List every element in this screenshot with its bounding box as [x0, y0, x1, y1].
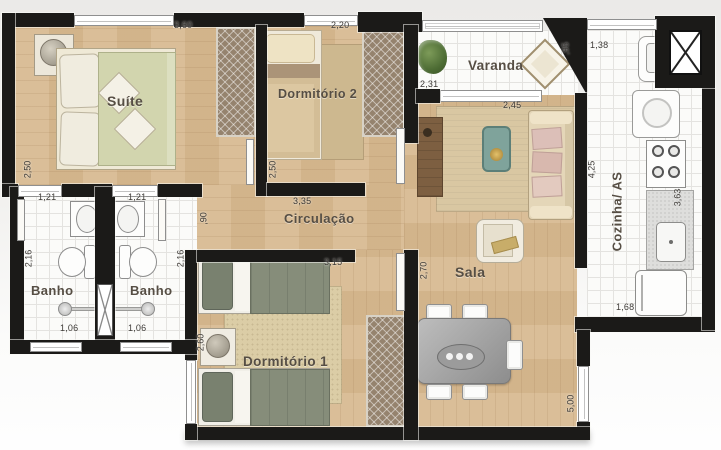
washer-drum — [642, 98, 672, 128]
wall — [267, 183, 365, 196]
stove-burner — [668, 166, 680, 178]
door-dormitorio1 — [396, 253, 405, 311]
room-label-sala: Sala — [455, 264, 485, 280]
dim-dorm1-depth: 2,60 — [197, 328, 206, 358]
window-cozinha — [587, 19, 657, 30]
dim-dorm2-width: 2,20 — [331, 21, 349, 30]
wall — [404, 25, 418, 143]
dining-chair — [426, 384, 452, 400]
wall — [185, 427, 590, 440]
wall — [575, 317, 715, 332]
dim-banho-right-door: 1,21 — [128, 193, 146, 202]
sofa-pillow — [531, 127, 562, 150]
dim-banho-left-window: 1,06 — [60, 324, 78, 333]
dim-suite-width: 3,60 — [174, 21, 192, 30]
bed-pillow — [266, 34, 315, 63]
dim-kitchen-width: 1,68 — [616, 303, 634, 312]
door-dormitorio2 — [396, 128, 405, 184]
room-label-dormitorio2: Dormitório 2 — [278, 87, 357, 101]
wall — [575, 93, 587, 268]
wardrobe-suite — [216, 27, 256, 137]
shaft-x-icon — [669, 30, 702, 75]
wall — [577, 330, 590, 366]
window-sala — [578, 366, 589, 422]
toilet-bowl — [58, 247, 86, 277]
dim-sala-width: 2,45 — [503, 101, 521, 110]
dim-dorm1-width: 3,15 — [324, 258, 342, 267]
room-label-suite: Suíte — [107, 93, 143, 109]
platter-dot — [446, 353, 453, 360]
dim-corridor-width: 3,35 — [293, 197, 311, 206]
shower-head-icon — [141, 302, 155, 316]
stove-burner — [652, 145, 664, 157]
room-label-circulacao: Circulação — [284, 211, 354, 226]
stove-burner — [652, 166, 664, 178]
dining-chair — [506, 340, 523, 370]
dining-chair — [462, 384, 488, 400]
platter-dot — [456, 353, 463, 360]
stove-burner — [668, 145, 680, 157]
toilet-bowl — [129, 247, 157, 277]
varanda-sala-door — [440, 90, 542, 102]
sofa-armrest — [530, 112, 572, 124]
dim-banho-right-window: 1,06 — [128, 324, 146, 333]
wall — [185, 424, 197, 440]
bed-sheet — [235, 259, 250, 311]
sofa-pillow — [531, 151, 562, 174]
varanda-railing — [422, 20, 543, 32]
room-label-banho-left: Banho — [31, 283, 73, 298]
bed-duvet — [250, 369, 330, 426]
room-label-varanda: Varanda — [468, 58, 523, 73]
dim-varanda-width: 2,31 — [420, 80, 438, 89]
window-suite — [74, 15, 174, 26]
floorplan: Suíte Dormitório 2 Varanda Cozinha/ AS C… — [0, 0, 721, 450]
window-dormitorio1 — [186, 360, 196, 424]
dim-dorm2-depth: 2,50 — [269, 155, 278, 185]
platter-dot — [466, 353, 473, 360]
door-banho-right — [158, 199, 166, 241]
wall — [2, 13, 15, 196]
dim-sala-depth: 2,70 — [420, 256, 429, 286]
bed-pillow — [59, 53, 101, 108]
dim-banho-left-depth: 2,16 — [25, 244, 34, 274]
bed-sheet — [235, 371, 250, 423]
faucet-dot — [669, 240, 673, 244]
window-banho-right — [120, 342, 172, 352]
bed-duvet — [262, 64, 320, 78]
rug-dormitorio2 — [320, 44, 364, 160]
dim-suite-depth: 2,50 — [24, 155, 33, 185]
wall — [256, 25, 267, 196]
dim-kitchen-window: 1,38 — [590, 41, 608, 50]
wardrobe-dormitorio1 — [366, 315, 407, 427]
room-label-dormitorio1: Dormitório 1 — [243, 354, 328, 369]
room-label-cozinha: Cozinha/ AS — [610, 142, 625, 282]
sink-basin — [117, 205, 139, 233]
dim-banho-left-door: 1,21 — [38, 193, 56, 202]
shower-head-icon — [58, 302, 72, 316]
bed-pillow — [202, 372, 233, 422]
wall — [174, 13, 304, 27]
door-banho-left — [17, 199, 25, 241]
room-label-banho-right: Banho — [130, 283, 172, 298]
wall — [416, 89, 440, 103]
table-lamp-icon — [206, 334, 230, 358]
wall — [158, 184, 202, 197]
dim-sala-length: 5,00 — [567, 389, 576, 419]
sofa-backrest — [565, 113, 573, 217]
cabinet-decor — [423, 128, 432, 137]
shaft-x-icon — [97, 284, 113, 336]
fridge-handle — [641, 275, 643, 311]
shower-arm — [113, 307, 143, 311]
dim-banho-right-depth: 2,16 — [177, 244, 186, 274]
vase-icon — [490, 148, 503, 161]
wardrobe-dormitorio2 — [362, 30, 405, 137]
dim-varanda-depth: ,95 — [562, 34, 571, 64]
dim-corridor-depth: ,90 — [200, 204, 209, 234]
bed-duvet — [250, 257, 330, 314]
plant-icon — [417, 40, 447, 74]
door-suite — [246, 139, 254, 185]
wall — [404, 250, 418, 440]
dim-kitchen-counter: 3,63 — [674, 183, 683, 213]
bed-pillow — [59, 111, 101, 166]
bed-pillow — [202, 260, 233, 310]
sofa-pillow — [531, 175, 562, 198]
window-banho-left — [30, 342, 82, 352]
sofa-armrest — [530, 206, 572, 218]
dim-kitchen-depth: 4,25 — [588, 155, 597, 185]
